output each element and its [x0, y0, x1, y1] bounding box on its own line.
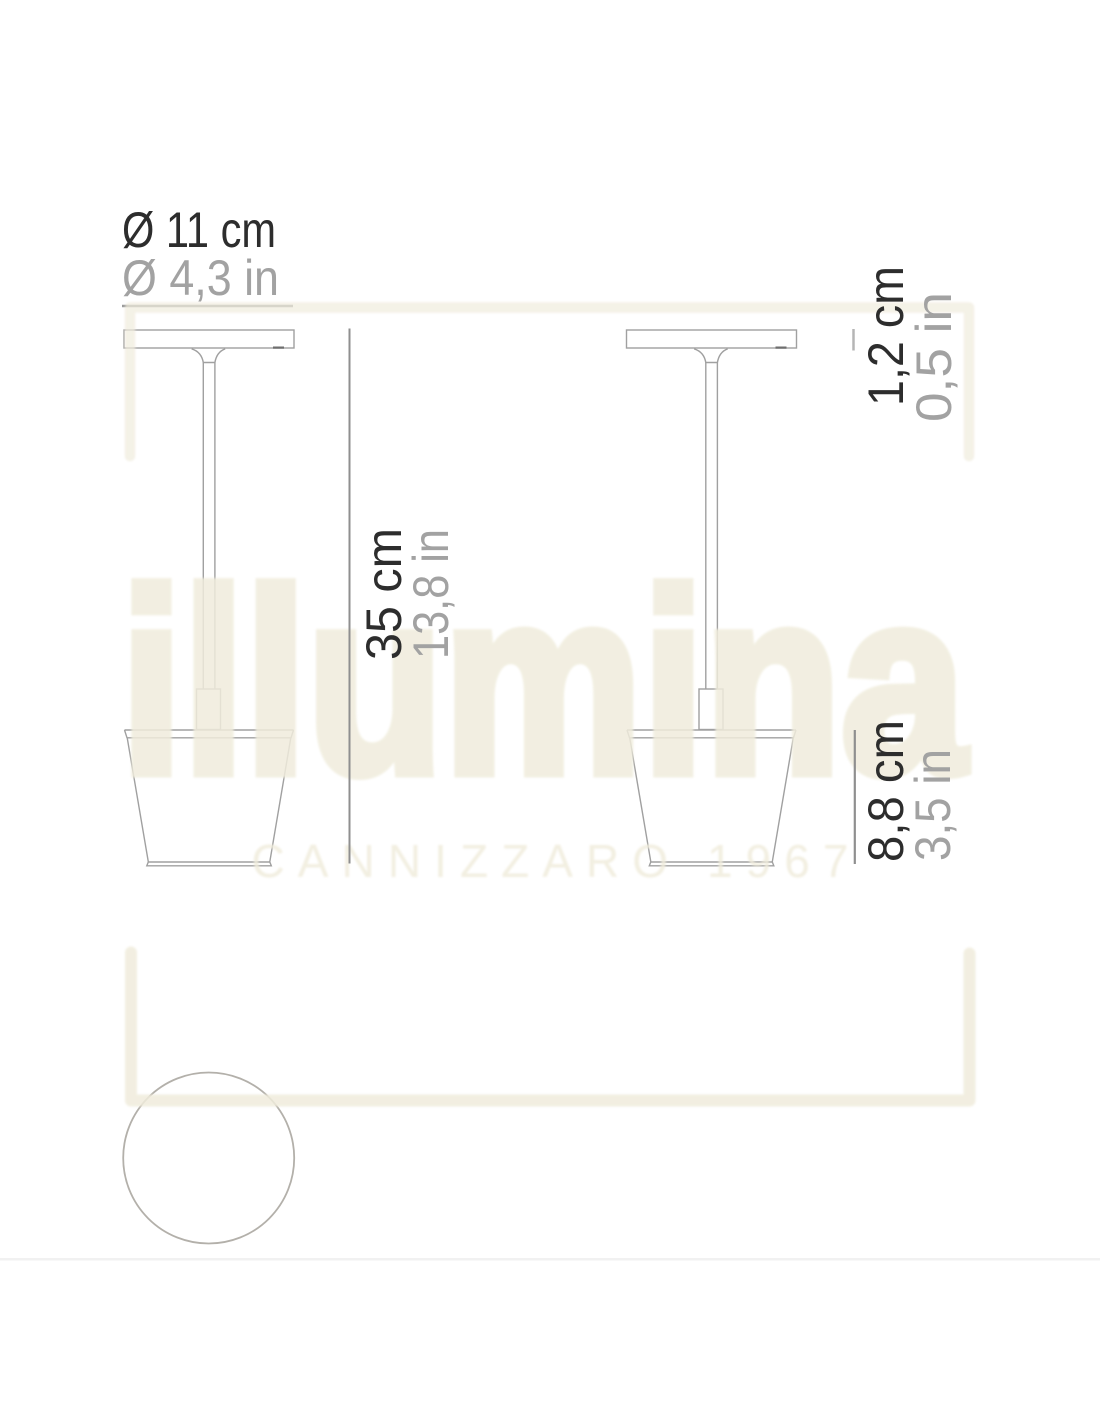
svg-text:Ø 4,3 in: Ø 4,3 in	[122, 250, 279, 306]
svg-text:illumina: illumina	[121, 538, 967, 828]
svg-text:0,5 in: 0,5 in	[906, 292, 962, 422]
svg-text:3,5 in: 3,5 in	[905, 749, 961, 861]
svg-text:CANNIZZARO 1967: CANNIZZARO 1967	[252, 835, 849, 887]
svg-text:13,8 in: 13,8 in	[403, 529, 459, 659]
